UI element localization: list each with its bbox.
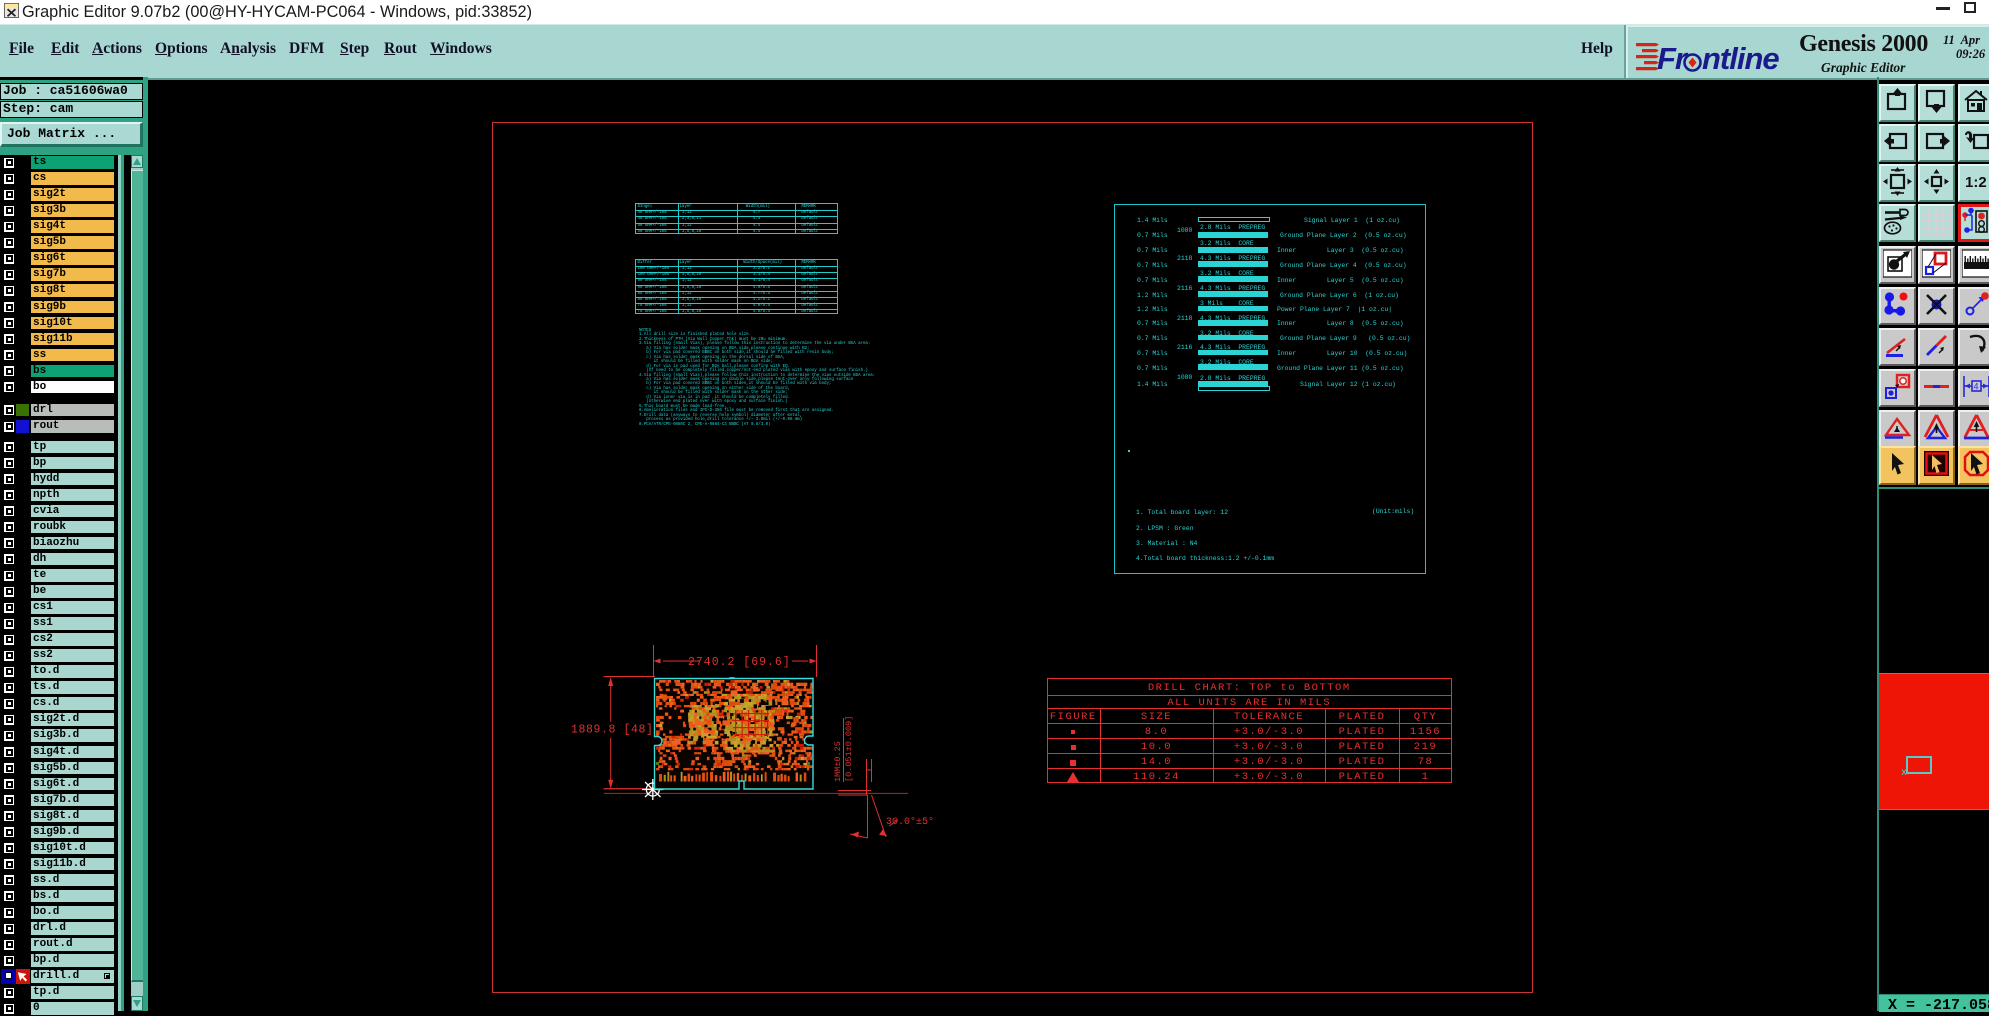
svg-text:1:2: 1:2 (1965, 174, 1987, 191)
svg-text:[0.051±0.009]: [0.051±0.009] (844, 716, 854, 782)
svg-text:1889.8 [48]: 1889.8 [48] (571, 724, 654, 737)
svg-text:ntline: ntline (1702, 41, 1779, 76)
svg-text:2740.2 [69.6]: 2740.2 [69.6] (688, 656, 791, 669)
svg-text:30.0°±5°: 30.0°±5° (886, 816, 934, 828)
svg-text:1MM±0.25: 1MM±0.25 (833, 741, 843, 782)
svg-text:4: 4 (1973, 381, 1978, 391)
